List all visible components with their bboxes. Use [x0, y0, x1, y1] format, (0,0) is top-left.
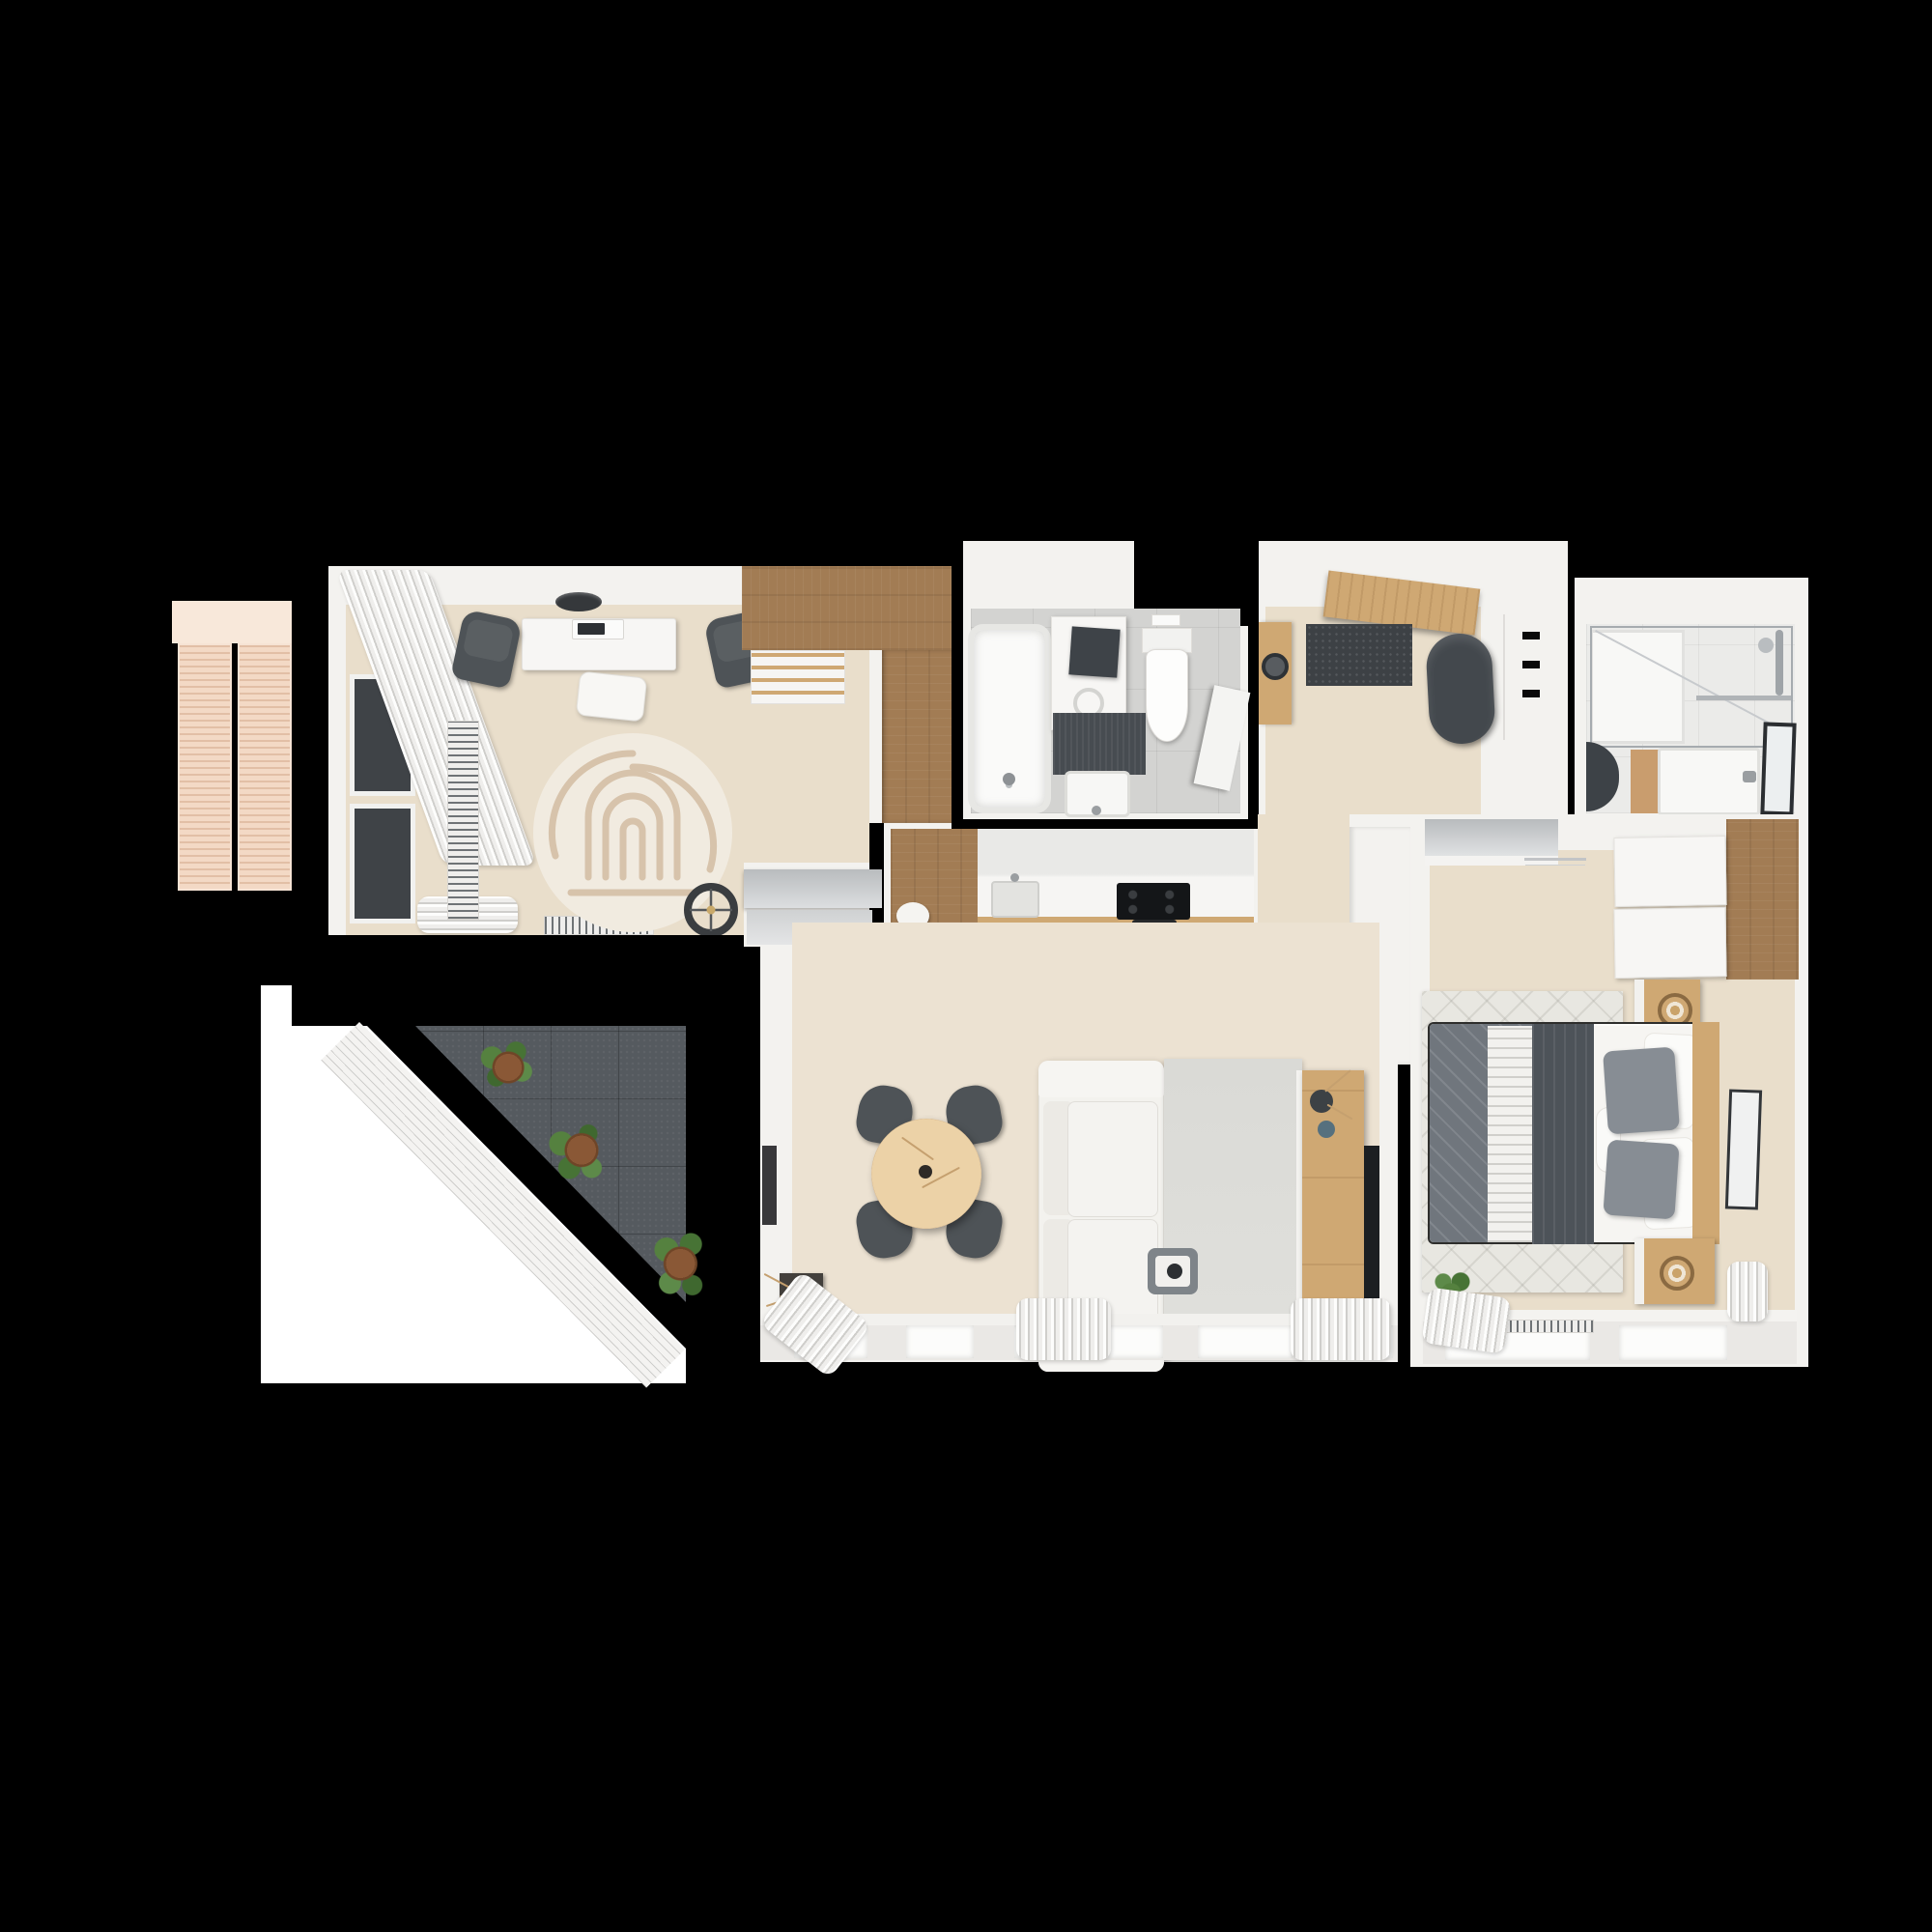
sofa-back-cushion	[1043, 1101, 1074, 1215]
kitchen-tall-cabinet	[891, 829, 978, 923]
sofa-armrest	[1038, 1061, 1164, 1097]
bedroom-window-sill	[1423, 1310, 1797, 1321]
washer-counter	[1051, 616, 1126, 730]
bedroom-console	[1425, 819, 1558, 856]
bed-base	[1428, 1022, 1718, 1244]
office-walls	[328, 566, 744, 935]
open-shelf-unit	[751, 650, 845, 704]
hallway-walls	[1259, 541, 1568, 831]
balcony-deck-panel	[238, 643, 292, 891]
tray-inner	[1155, 1256, 1190, 1287]
terrace-plant	[649, 1225, 719, 1302]
bedroom-curtain	[1421, 1287, 1511, 1353]
ceiling-lamp	[555, 592, 602, 611]
office-curtain	[336, 570, 536, 866]
bed-quilt-dark	[1532, 1024, 1594, 1244]
dining-table	[871, 1119, 981, 1229]
wall-artwork	[762, 1146, 777, 1225]
hallway-door-frame-line	[1503, 614, 1505, 740]
nightstand	[1634, 980, 1700, 1043]
hallway-pouf	[1425, 632, 1496, 745]
hallway	[0, 0, 1932, 1932]
living-window-band	[760, 1325, 1398, 1360]
headboard	[1692, 1022, 1719, 1244]
living-room-floor	[792, 923, 1379, 1320]
bathtub	[968, 624, 1051, 813]
living-window-sill	[760, 1314, 1398, 1325]
living-window-pane	[794, 1325, 867, 1358]
balcony	[0, 0, 1932, 1932]
living-rug	[1164, 1059, 1302, 1360]
kitchen-sink	[991, 881, 1039, 918]
shower-glass	[1590, 626, 1793, 748]
nightstand-lamp	[1660, 1256, 1694, 1291]
desk-chair	[703, 609, 777, 689]
bathroom-door-open	[1194, 685, 1251, 791]
sliding-door-panel	[747, 910, 872, 945]
sofa-base	[1038, 1061, 1164, 1372]
terrace-railing	[321, 1022, 685, 1388]
sofa-seat-cushion	[1067, 1101, 1158, 1217]
table-vase	[919, 1165, 932, 1179]
office-floor	[346, 605, 744, 935]
balcony-deck-panel	[178, 643, 232, 891]
office-room	[0, 0, 1932, 1932]
doormat	[1306, 624, 1412, 686]
oven-handle	[1132, 920, 1177, 925]
hallway-console	[1259, 622, 1292, 724]
balcony-top-band	[172, 601, 292, 643]
bathroom-wall-niche	[1134, 541, 1248, 626]
shower-glass-glare	[1595, 630, 1796, 738]
round-maze-rug	[530, 730, 735, 935]
floor-cushion	[576, 670, 647, 722]
office-window-glass	[350, 804, 415, 923]
dried-branch	[766, 1292, 809, 1307]
washer-door	[1073, 688, 1104, 719]
bathroom-sink	[1065, 771, 1130, 817]
bedroom-window-pane	[1445, 1325, 1590, 1360]
bedroom-walls	[1410, 814, 1808, 1367]
bed-quilt-light	[1430, 1024, 1532, 1242]
shower-room	[0, 0, 1932, 1932]
laptop	[572, 619, 624, 639]
terrace-tiles	[415, 1026, 686, 1302]
office-alcove-walls	[744, 566, 952, 947]
kitchen-base	[884, 829, 1258, 925]
toilet-tank	[1142, 628, 1192, 653]
leaning-mirror	[1760, 722, 1796, 815]
terrace-plant	[541, 1121, 609, 1186]
tv-sideboard-edge	[1296, 1070, 1302, 1352]
corridor-floor	[1258, 814, 1350, 1024]
bathtub-faucet	[1003, 773, 1015, 785]
bed-bolster	[1596, 1107, 1621, 1173]
office-curtain	[417, 896, 518, 933]
living-window-pane	[1198, 1325, 1293, 1358]
tv-sideboard	[1302, 1070, 1364, 1352]
kitchen-faucet	[1010, 873, 1019, 882]
flush-plate	[1151, 614, 1180, 626]
bedroom-curtain	[1727, 1262, 1768, 1321]
dining-chair	[853, 1196, 917, 1263]
tray-cup	[1167, 1264, 1182, 1279]
living-west-wall	[760, 976, 792, 1362]
bedroom-plant	[1434, 1265, 1472, 1312]
living-room	[0, 0, 1932, 1932]
nightstand-lamp	[1658, 993, 1692, 1028]
laundry-basket	[1068, 626, 1120, 677]
shower-room-floor	[1586, 624, 1795, 813]
bath-mat	[1053, 713, 1146, 775]
pillow-gray	[1603, 1140, 1679, 1220]
console-bowl	[1262, 653, 1289, 680]
bathroom-floor	[971, 609, 1240, 813]
nightstand	[1634, 1238, 1715, 1304]
sofa-armrest	[1038, 1335, 1164, 1372]
decor-box	[780, 1273, 823, 1304]
wardrobe-bottom	[1613, 907, 1726, 979]
table-branch	[922, 1167, 960, 1188]
sliding-door-ledge	[760, 945, 884, 978]
kitchen-counter	[978, 829, 1254, 923]
wardrobe-side-panel	[1726, 819, 1799, 980]
toilet-bowl	[1146, 649, 1188, 742]
hallway-floor	[1265, 607, 1481, 814]
terrace-plant	[475, 1036, 535, 1094]
wardrobe-brown-column	[882, 650, 952, 823]
bedroom-floor	[1430, 850, 1795, 1316]
living-east-wall-face	[1379, 1005, 1398, 1362]
dining-chair	[942, 1082, 1006, 1149]
desk-chair	[450, 609, 523, 689]
pillow-white	[1640, 1137, 1699, 1231]
living-window-pane	[906, 1325, 974, 1358]
shower-room-basin	[1658, 748, 1760, 815]
kitchen-plinth	[978, 917, 1254, 923]
bedroom-radiator	[1475, 1320, 1594, 1333]
wall-hook	[1522, 690, 1540, 697]
living-window-pane	[1329, 1325, 1393, 1358]
vertical-radiator	[447, 721, 479, 920]
table-branch	[901, 1137, 934, 1161]
shower-rail	[1776, 630, 1783, 696]
bedroom	[0, 0, 1932, 1932]
shower-head	[1758, 638, 1774, 653]
bedroom-window-band	[1423, 1321, 1797, 1364]
decor-vase	[1310, 1090, 1333, 1113]
pillow-gray	[1603, 1047, 1680, 1135]
living-curtain	[759, 1270, 871, 1378]
bathroom-main	[0, 0, 1932, 1932]
bedroom-rug	[1422, 991, 1623, 1293]
bedroom-console-lip	[1425, 856, 1558, 866]
office-window-glass	[350, 674, 415, 796]
dining-chair	[853, 1082, 917, 1149]
sliding-door-panel	[744, 869, 882, 908]
kitchen-stool	[896, 902, 929, 929]
towel-bar	[1696, 696, 1791, 700]
clothes-rail	[1524, 858, 1586, 861]
living-room-walls	[792, 923, 1398, 1362]
dried-branch	[764, 1273, 810, 1298]
corridor-white-door	[1350, 827, 1410, 1065]
dining-chair	[942, 1196, 1006, 1263]
living-curtain	[1016, 1298, 1111, 1360]
baseboard-radiator	[544, 916, 654, 935]
office-alcove-floor	[744, 628, 869, 863]
living-window-pane	[1014, 1325, 1163, 1358]
pillow-white	[1639, 1033, 1698, 1130]
bed-folded-runner	[1488, 1026, 1532, 1242]
dried-branch	[780, 1295, 805, 1327]
vanity-cabinet	[1631, 750, 1663, 813]
wardrobe-brown-band	[742, 566, 952, 650]
wall-hook	[1522, 661, 1540, 668]
living-curtain	[1291, 1298, 1391, 1360]
kitchen	[0, 0, 1932, 1932]
office-desk	[522, 618, 676, 670]
floor-lamp	[678, 881, 744, 935]
shower-room-walls	[1575, 578, 1808, 826]
sofa-seat-cushion	[1067, 1219, 1158, 1333]
bed-sheet	[1594, 1026, 1692, 1242]
sofa-back-cushion	[1043, 1219, 1074, 1333]
bathroom-walls	[963, 541, 1248, 819]
decor-vase	[1318, 1121, 1335, 1138]
cooktop	[1117, 883, 1190, 920]
bedroom-window-pane	[1619, 1325, 1727, 1360]
laptop-keyboard	[578, 623, 605, 635]
wall-hook	[1522, 632, 1540, 639]
serving-tray	[1148, 1248, 1198, 1294]
floor-plan-canvas	[0, 0, 1932, 1932]
wardrobe-top	[1613, 836, 1726, 907]
wall-stub	[869, 823, 884, 935]
terrace-pavement	[261, 985, 686, 1383]
wall-tv	[1364, 1146, 1379, 1310]
vase-branch	[1324, 1069, 1350, 1092]
basin-faucet	[1743, 771, 1756, 782]
bedroom-mirror	[1725, 1089, 1762, 1209]
shower-tray	[1590, 630, 1685, 744]
entry-door-open	[1323, 571, 1481, 636]
terrace	[0, 0, 1932, 1932]
vase-branch	[1327, 1104, 1353, 1121]
half-round-rug	[1586, 742, 1619, 811]
sink-faucet	[1092, 806, 1101, 815]
